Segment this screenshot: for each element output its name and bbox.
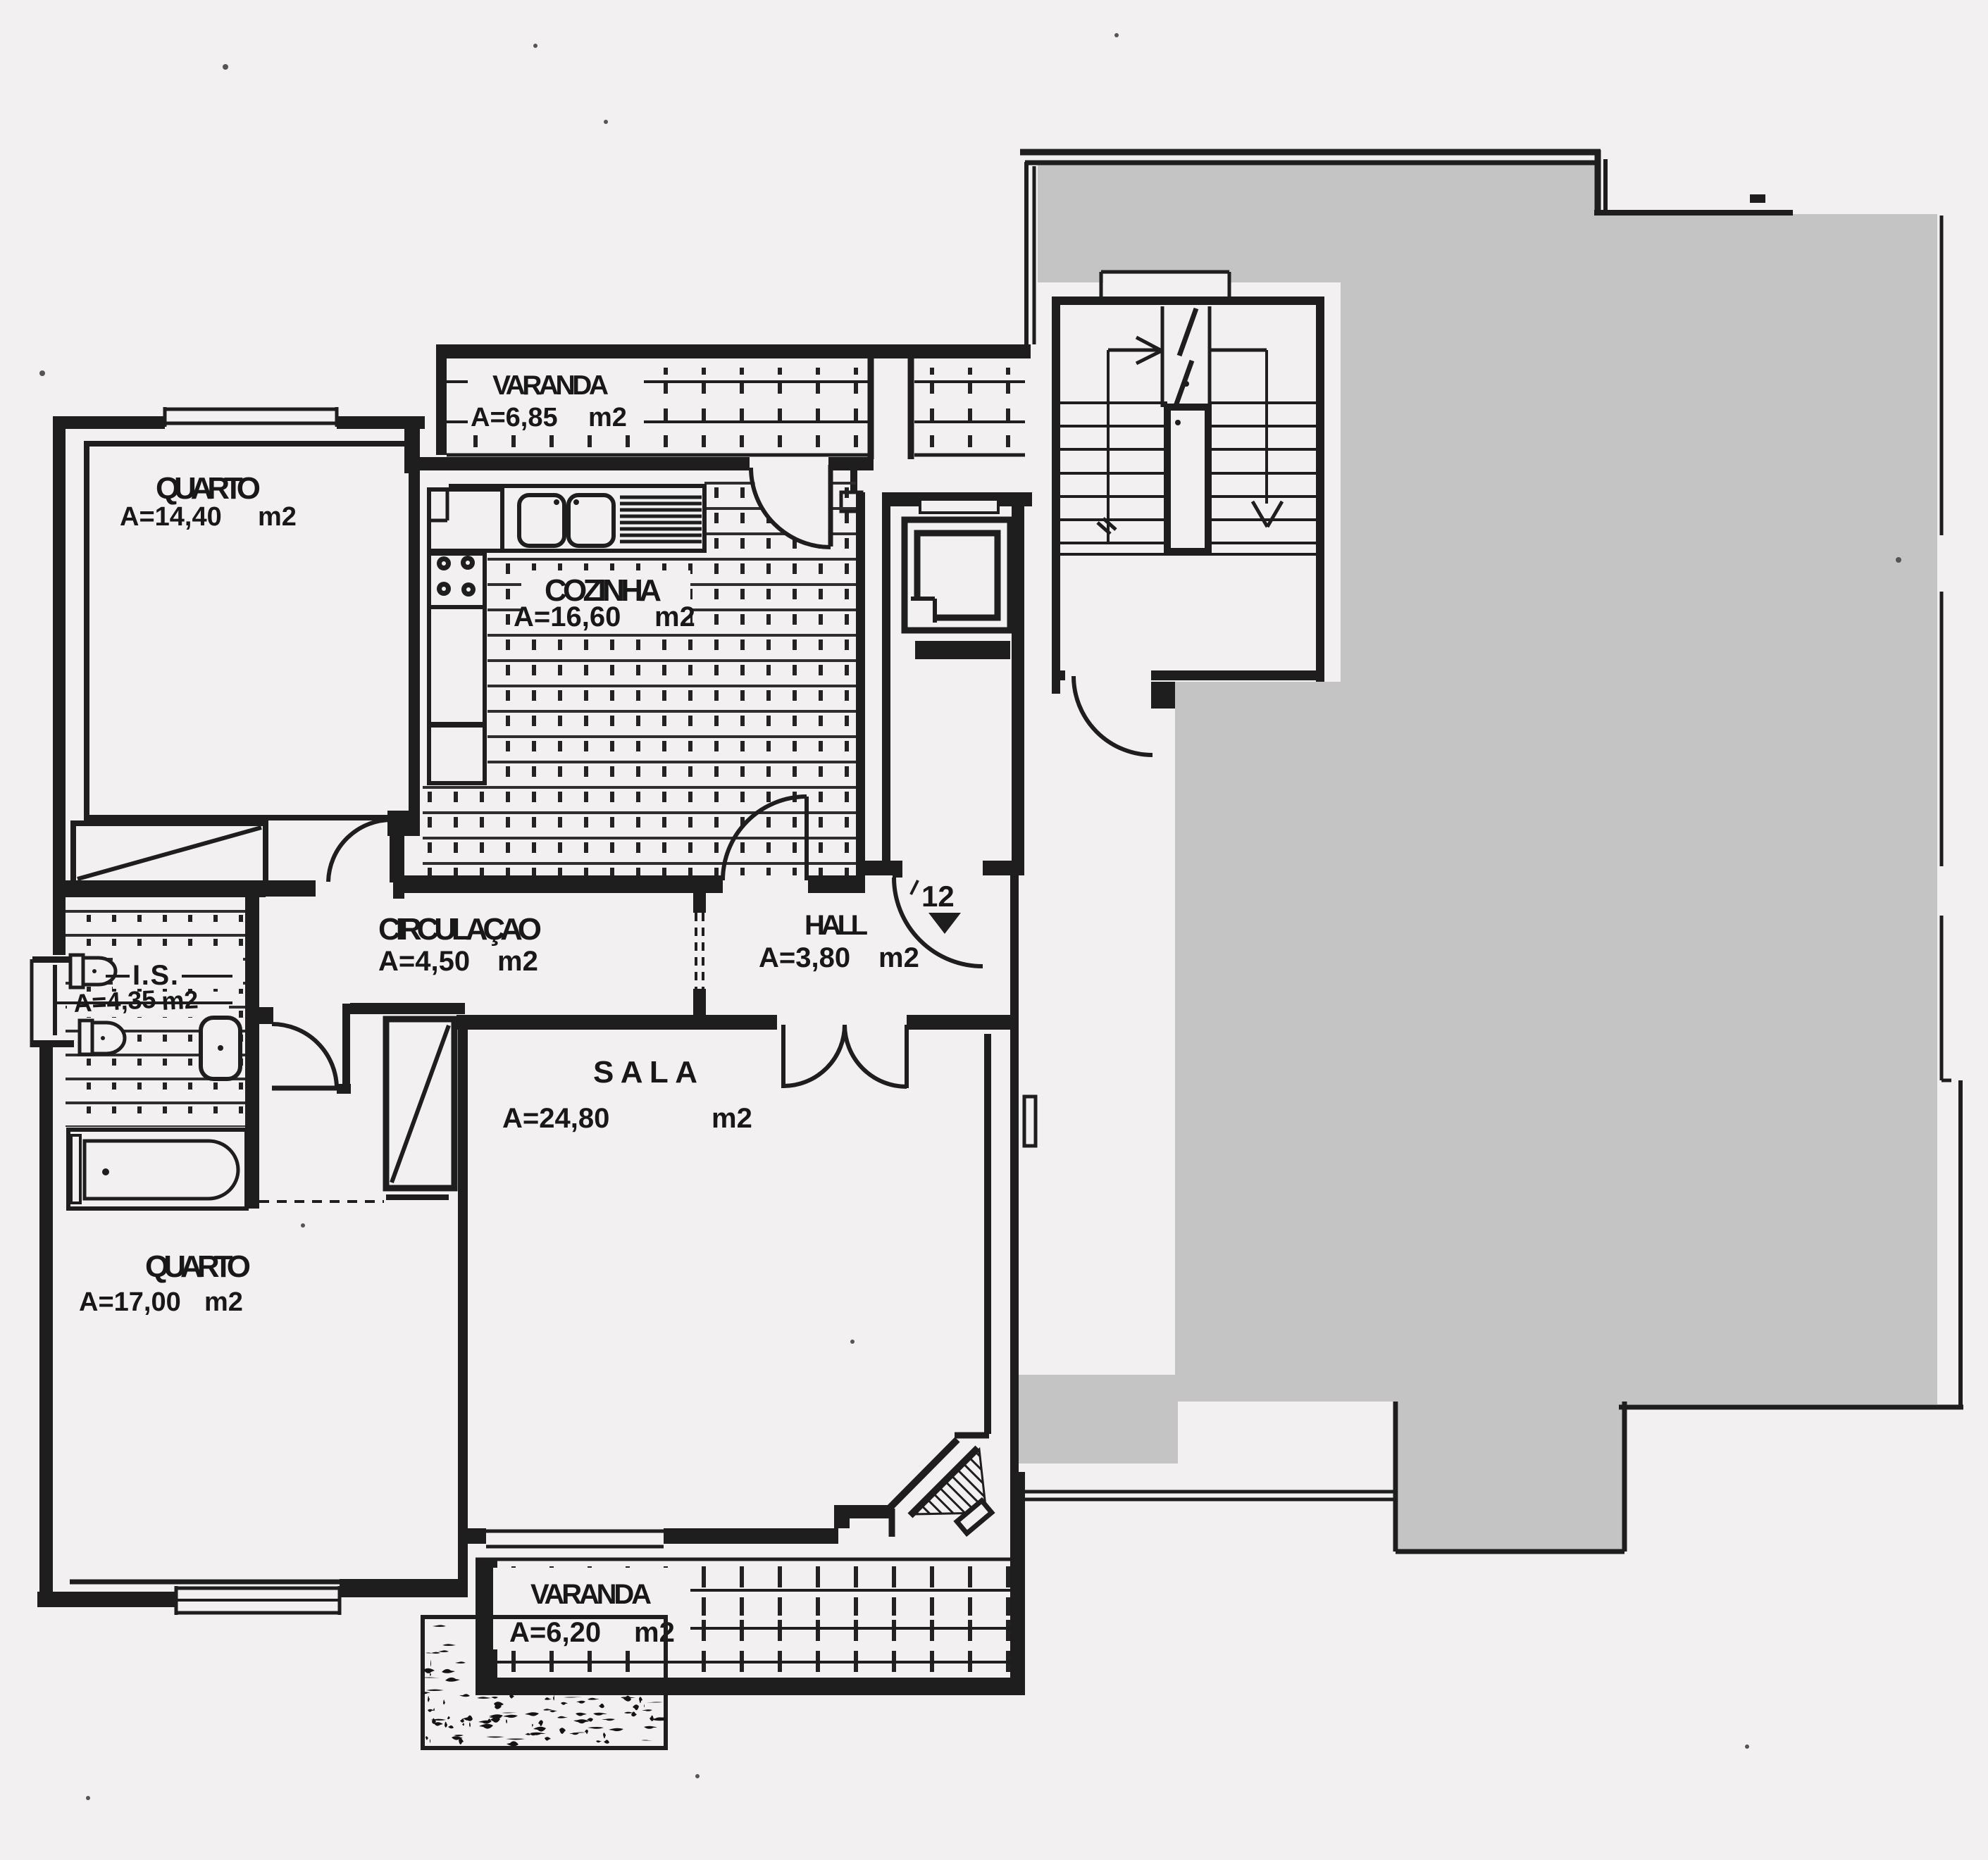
svg-text:A=6,85: A=6,85 <box>471 403 558 432</box>
svg-text:QUARTO: QUARTO <box>156 471 261 506</box>
svg-text:m2: m2 <box>161 985 199 1016</box>
svg-text:A=16,60: A=16,60 <box>514 601 621 632</box>
svg-text:m2: m2 <box>204 1287 243 1317</box>
svg-text:HALL: HALL <box>804 910 868 941</box>
svg-text:A=4,35: A=4,35 <box>73 985 156 1018</box>
svg-text:CIRCULAÇAO: CIRCULAÇAO <box>378 912 542 947</box>
svg-text:m2: m2 <box>634 1617 675 1648</box>
svg-text:VARANDA: VARANDA <box>492 370 609 401</box>
svg-text:A=14,40: A=14,40 <box>120 502 222 532</box>
svg-text:A=4,50: A=4,50 <box>378 946 470 977</box>
svg-text:A=17,00: A=17,00 <box>79 1287 181 1317</box>
svg-text:m2: m2 <box>654 601 695 632</box>
svg-text:A=24,80: A=24,80 <box>502 1103 609 1134</box>
svg-text:m2: m2 <box>497 946 538 977</box>
svg-text:A=6,20: A=6,20 <box>509 1617 601 1648</box>
svg-text:m2: m2 <box>588 403 627 432</box>
svg-text:A=3,80: A=3,80 <box>759 942 850 973</box>
svg-text:VARANDA: VARANDA <box>530 1579 652 1610</box>
svg-text:m2: m2 <box>878 942 919 973</box>
svg-text:m2: m2 <box>712 1103 752 1134</box>
svg-text:QUARTO: QUARTO <box>145 1249 251 1284</box>
svg-text:12: 12 <box>921 880 955 913</box>
svg-text:m2: m2 <box>258 502 297 532</box>
